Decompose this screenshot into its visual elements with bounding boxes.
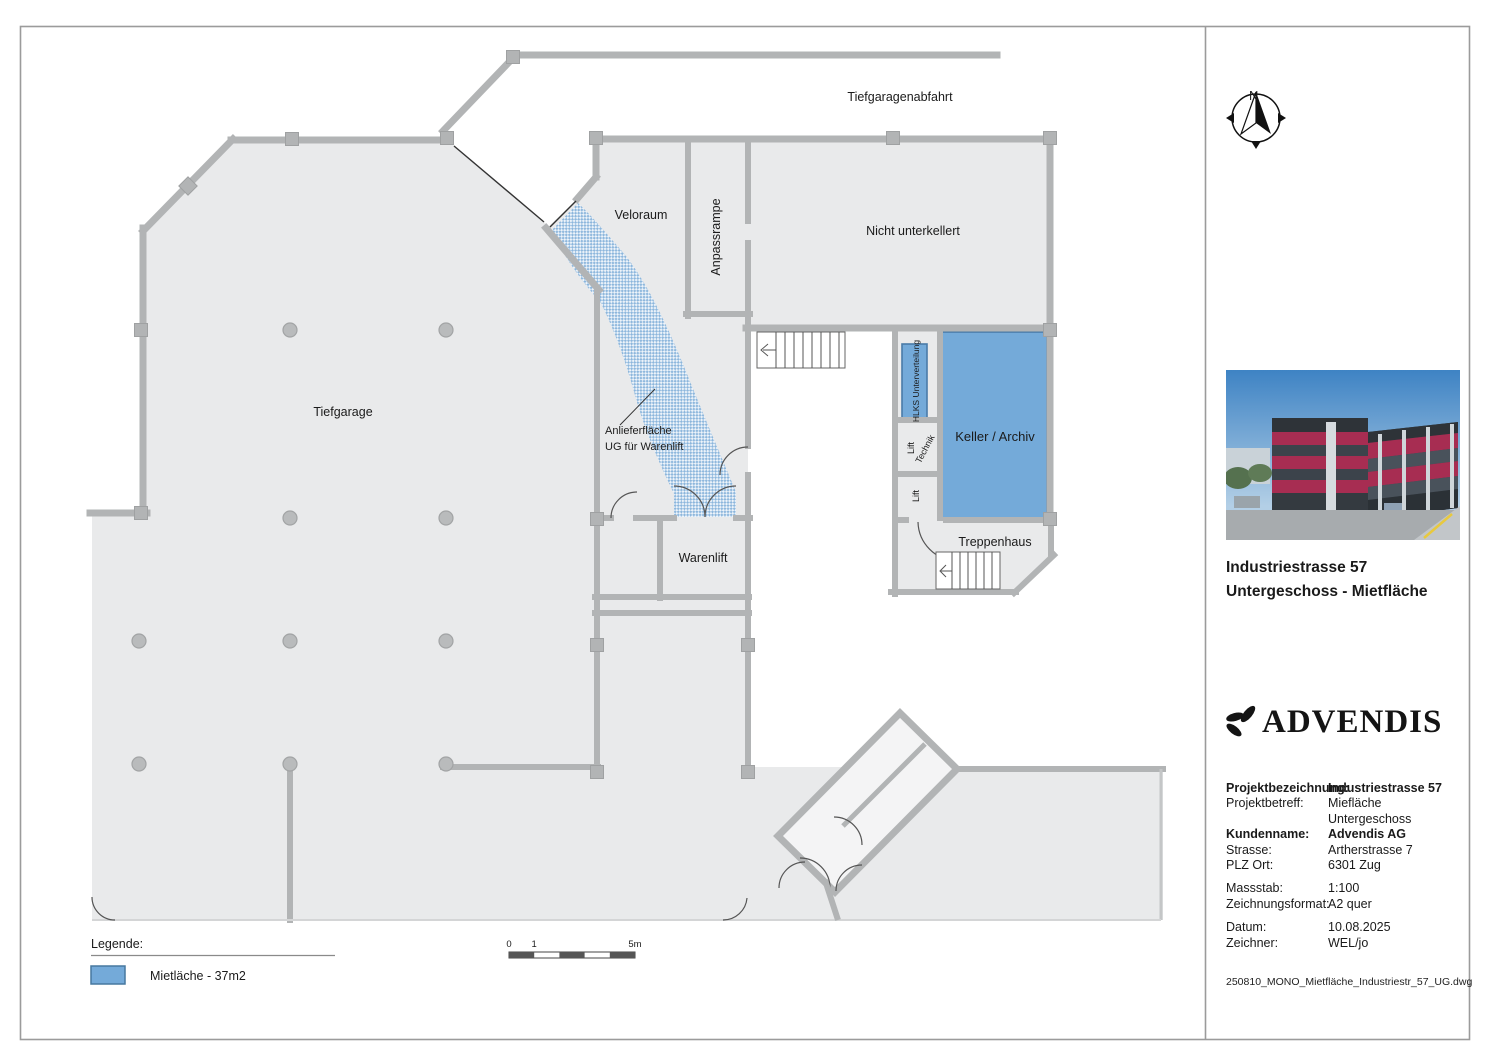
label-lift-lower: Lift xyxy=(911,490,921,503)
meta-label: Projektbetreff: xyxy=(1226,796,1328,827)
compass-north-label: N xyxy=(1249,88,1258,103)
meta-row: Massstab: 1:100 xyxy=(1226,881,1464,896)
scale-0: 0 xyxy=(506,939,511,950)
north-compass: N xyxy=(1222,82,1294,158)
meta-label: Datum: xyxy=(1226,920,1328,935)
meta-label: Projektbezeichnung: xyxy=(1226,781,1328,796)
meta-value: WEL/jo xyxy=(1328,936,1464,951)
legend: Legende: Mietläche - 37m2 xyxy=(91,937,335,984)
meta-row: Projektbezeichnung: Industriestrasse 57 xyxy=(1226,781,1464,796)
meta-row: Datum: 10.08.2025 xyxy=(1226,920,1464,935)
keller-archiv-area xyxy=(941,332,1047,519)
meta-value: A2 quer xyxy=(1328,897,1464,912)
meta-label: Zeichner: xyxy=(1226,936,1328,951)
label-keller-archiv: Keller / Archiv xyxy=(955,429,1035,444)
label-anlieferflaeche-1: Anlieferfläche xyxy=(605,425,672,437)
floor-areas xyxy=(92,139,1163,920)
meta-value: Industriestrasse 57 xyxy=(1328,781,1464,796)
label-tiefgaragenabfahrt: Tiefgaragenabfahrt xyxy=(847,90,953,104)
meta-label: Strasse: xyxy=(1226,843,1328,858)
meta-label: Kundenname: xyxy=(1226,827,1328,842)
label-lift-upper: Lift xyxy=(906,442,916,455)
label-veloraum: Veloraum xyxy=(615,208,668,222)
meta-label: PLZ Ort: xyxy=(1226,858,1328,873)
building-photo xyxy=(1226,370,1460,540)
meta-label: Zeichnungsformat: xyxy=(1226,897,1328,912)
meta-label: Massstab: xyxy=(1226,881,1328,896)
drawing-filename: 250810_MONO_Mietfläche_Industriestr_57_U… xyxy=(1226,976,1472,988)
label-hlks: HLKS Unterverteilung xyxy=(911,340,921,422)
meta-value: 6301 Zug xyxy=(1328,858,1464,873)
building-left-wing xyxy=(1272,418,1368,522)
meta-row: Strasse: Artherstrasse 7 xyxy=(1226,843,1464,858)
sheet-title: Industriestrasse 57 Untergeschoss - Miet… xyxy=(1226,556,1466,604)
meta-row: Kundenname: Advendis AG xyxy=(1226,827,1464,842)
label-anpassrampe: Anpassrampe xyxy=(709,198,723,275)
advendis-logo: ADVENDIS xyxy=(1224,702,1442,742)
scale-1: 1 xyxy=(532,939,537,950)
floor-left-mass xyxy=(92,139,748,920)
meta-row: Projektbetreff: Miefläche Untergeschoss xyxy=(1226,796,1464,827)
legend-title: Legende: xyxy=(91,937,143,951)
meta-row: Zeichnungsformat: A2 quer xyxy=(1226,897,1464,912)
label-tiefgarage: Tiefgarage xyxy=(313,405,372,419)
meta-value: 1:100 xyxy=(1328,881,1464,896)
advendis-leaf-icon xyxy=(1224,702,1260,742)
advendis-logo-text: ADVENDIS xyxy=(1262,704,1442,741)
meta-value: Artherstrasse 7 xyxy=(1328,843,1464,858)
label-treppenhaus: Treppenhaus xyxy=(958,535,1031,549)
scale-bar: 0 1 5m xyxy=(506,939,641,958)
meta-row: PLZ Ort: 6301 Zug xyxy=(1226,858,1464,873)
sheet-title-line1: Industriestrasse 57 xyxy=(1226,556,1466,580)
label-nicht-unterkellert: Nicht unterkellert xyxy=(866,224,960,238)
scale-5m: 5m xyxy=(628,939,641,950)
building-right-wing xyxy=(1368,422,1458,520)
legend-swatch xyxy=(91,966,125,984)
meta-value: 10.08.2025 xyxy=(1328,920,1464,935)
label-anlieferflaeche-2: UG für Warenlift xyxy=(605,441,683,453)
stairs-lower xyxy=(936,552,1000,589)
label-warenlift: Warenlift xyxy=(679,551,728,565)
meta-value: Advendis AG xyxy=(1328,827,1464,842)
sheet-title-line2: Untergeschoss - Mietfläche xyxy=(1226,580,1466,604)
meta-row: Zeichner: WEL/jo xyxy=(1226,936,1464,951)
project-metadata: Projektbezeichnung: Industriestrasse 57 … xyxy=(1226,781,1464,951)
meta-value: Miefläche Untergeschoss xyxy=(1328,796,1464,827)
legend-item-label: Mietläche - 37m2 xyxy=(150,969,246,983)
stairs-upper xyxy=(757,332,845,368)
